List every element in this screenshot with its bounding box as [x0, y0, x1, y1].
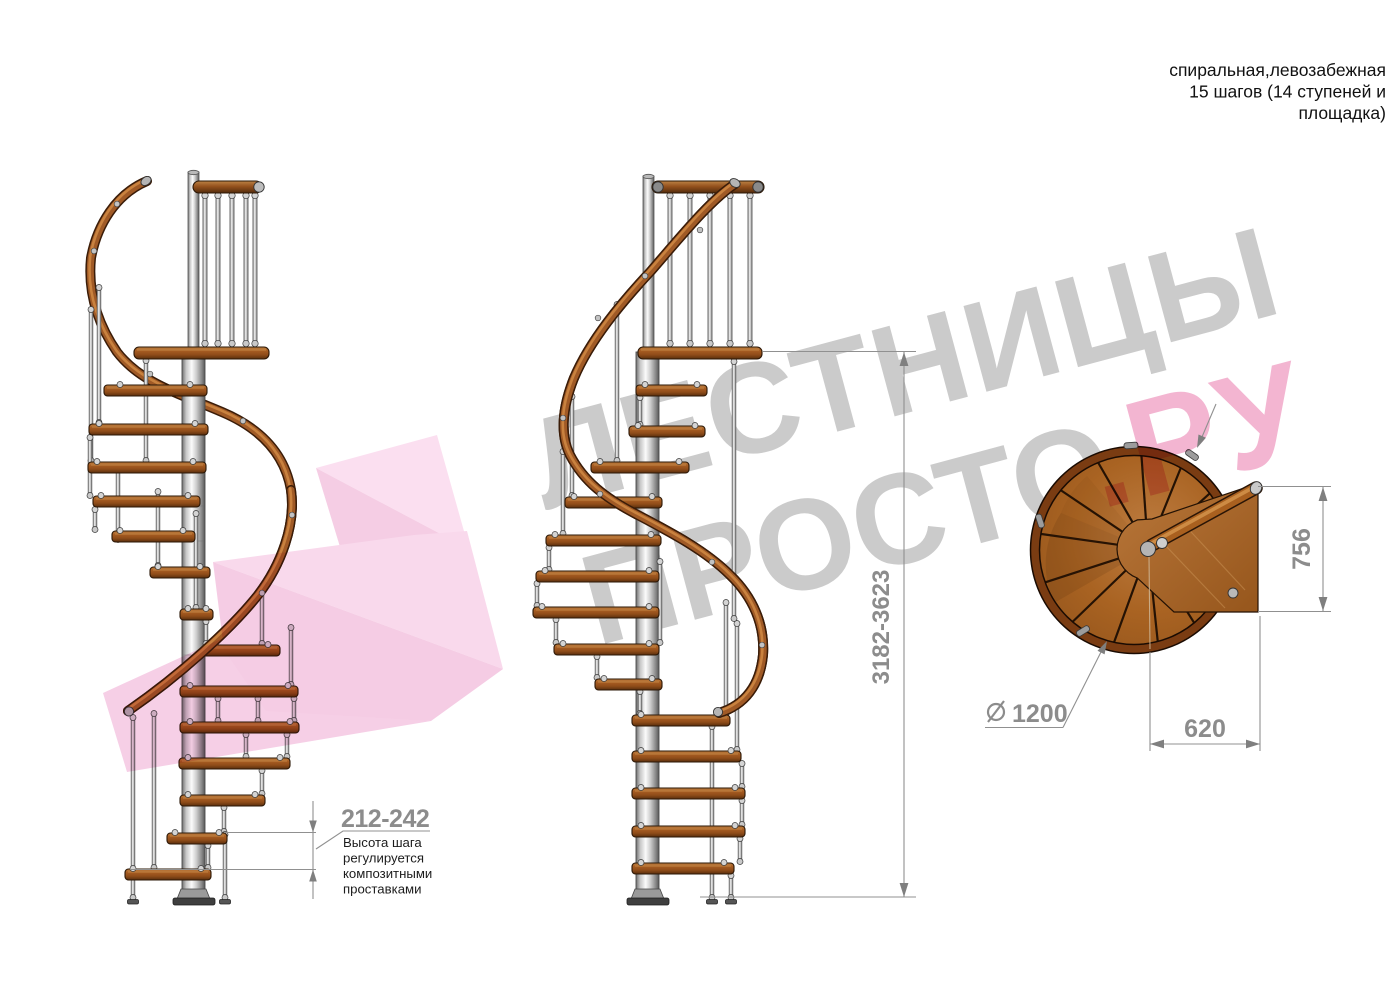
svg-text:15 шагов (14 ступеней и: 15 шагов (14 ступеней и [1189, 82, 1386, 102]
svg-text:Высота шага: Высота шага [343, 835, 422, 850]
svg-text:площадка): площадка) [1298, 103, 1386, 123]
svg-text:212-242: 212-242 [341, 805, 429, 833]
svg-text:620: 620 [1184, 715, 1226, 743]
svg-text:регулируется: регулируется [343, 851, 424, 866]
svg-text:756: 756 [1288, 528, 1316, 570]
svg-text:проставками: проставками [343, 882, 421, 897]
svg-text:3182-3623: 3182-3623 [868, 570, 895, 685]
svg-text:композитными: композитными [343, 866, 432, 881]
svg-text:спиральная,левозабежная: спиральная,левозабежная [1169, 60, 1386, 80]
svg-text:1200: 1200 [1012, 700, 1068, 728]
